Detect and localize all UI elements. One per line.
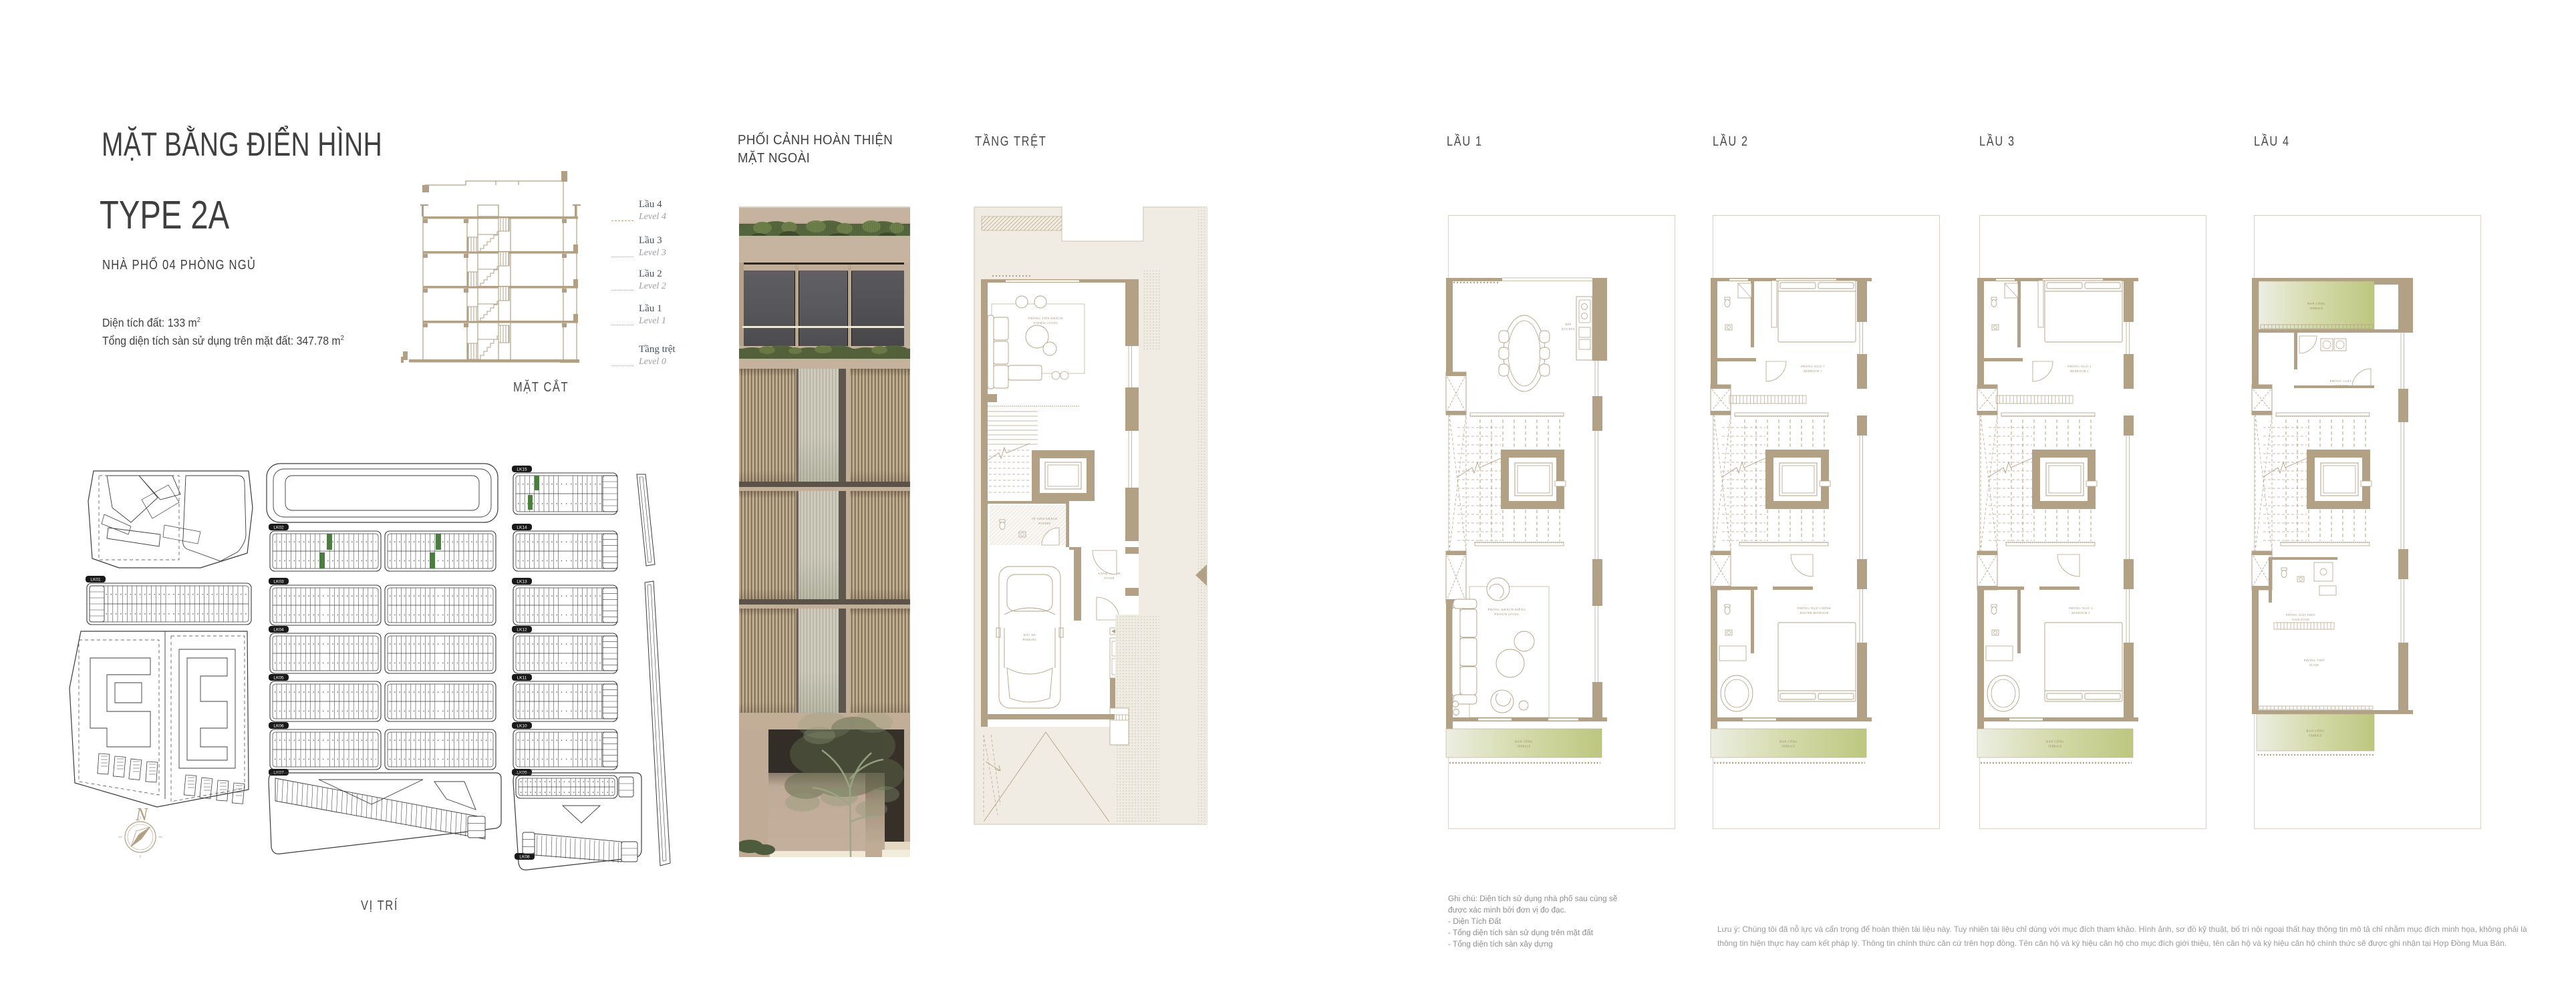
svg-text:N: N [135, 804, 149, 824]
svg-text:BAN CÔNG: BAN CÔNG [2307, 729, 2325, 733]
svg-text:LK05: LK05 [273, 676, 284, 681]
svg-text:VỆ SINH KHÁCH: VỆ SINH KHÁCH [1032, 517, 1058, 520]
svg-text:LK08: LK08 [519, 855, 530, 860]
svg-text:BEDROOM 3: BEDROOM 3 [2071, 611, 2090, 615]
svg-text:PRIVATE LIVING: PRIVATE LIVING [1493, 613, 1519, 616]
svg-text:PHÒNG NGỦ CHÍNH: PHÒNG NGỦ CHÍNH [1798, 607, 1831, 610]
svg-text:LK01: LK01 [90, 578, 101, 583]
svg-text:BÃI XE: BÃI XE [1024, 633, 1036, 637]
svg-text:LK13: LK13 [517, 580, 527, 585]
svg-text:LK12: LK12 [517, 628, 527, 633]
svg-text:FOYER: FOYER [1103, 576, 1114, 580]
svg-text:BAN CÔNG: BAN CÔNG [1779, 740, 1798, 743]
svg-text:PHÒNG TIẾP KHÁCH: PHÒNG TIẾP KHÁCH [1028, 317, 1063, 320]
svg-text:LK15: LK15 [517, 468, 527, 472]
svg-text:BEDROOM 1: BEDROOM 1 [1804, 369, 1822, 373]
svg-text:PHÒNG THỜ: PHÒNG THỜ [2304, 659, 2325, 662]
svg-text:MASTER BEDROOM: MASTER BEDROOM [1799, 611, 1828, 615]
svg-text:PHÒNG NGỦ 2: PHÒNG NGỦ 2 [2067, 365, 2092, 368]
svg-text:LK11: LK11 [517, 676, 527, 681]
svg-text:LK03: LK03 [273, 580, 284, 585]
svg-text:PHÒNG KHÁCH RIÊNG: PHÒNG KHÁCH RIÊNG [1488, 608, 1526, 611]
svg-text:ALTAR: ALTAR [2309, 663, 2319, 667]
svg-text:TERRACE: TERRACE [1517, 745, 1530, 748]
svg-text:PHÒNG GIẶT: PHÒNG GIẶT [2330, 379, 2352, 383]
svg-text:FORMAL LIVING: FORMAL LIVING [1032, 321, 1058, 325]
svg-text:BẾP: BẾP [1565, 323, 1571, 326]
svg-text:TERRACE: TERRACE [2309, 307, 2323, 310]
svg-text:BAN CÔNG: BAN CÔNG [2046, 740, 2064, 743]
svg-text:PHÒNG NGỦ 1: PHÒNG NGỦ 1 [1801, 365, 1825, 368]
svg-text:TERRACE: TERRACE [2309, 734, 2322, 737]
svg-text:TERRACE: TERRACE [1781, 745, 1795, 748]
svg-text:PHÒNG GIẶT PHƠI: PHÒNG GIẶT PHƠI [2286, 613, 2315, 617]
svg-text:BEDROOM 2: BEDROOM 2 [2070, 369, 2089, 373]
svg-text:LK14: LK14 [517, 526, 527, 530]
svg-text:KITCHEN: KITCHEN [1561, 328, 1574, 331]
svg-text:POWDER: POWDER [1038, 522, 1051, 525]
svg-text:LK02: LK02 [273, 526, 284, 530]
svg-text:LK06: LK06 [273, 724, 284, 729]
svg-text:LK04: LK04 [273, 628, 284, 633]
svg-text:WASH ROOM: WASH ROOM [2292, 619, 2309, 621]
svg-text:BAN CÔNG: BAN CÔNG [1515, 740, 1533, 743]
svg-text:BAN CÔNG: BAN CÔNG [2307, 302, 2325, 305]
svg-text:LK10: LK10 [517, 724, 527, 729]
svg-text:PHÒNG NGỦ 3: PHÒNG NGỦ 3 [2069, 607, 2093, 610]
svg-text:TERRACE: TERRACE [2048, 745, 2061, 748]
svg-text:PARKING: PARKING [1022, 638, 1036, 641]
